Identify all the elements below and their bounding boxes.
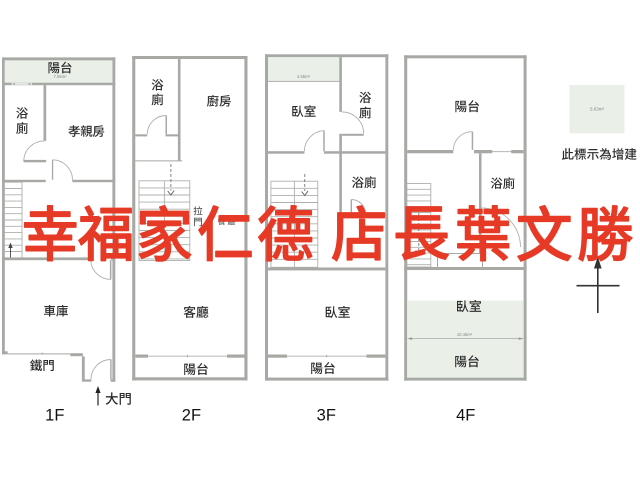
svg-text:5.63m²: 5.63m² bbox=[590, 107, 605, 112]
svg-text:4.56m²: 4.56m² bbox=[297, 74, 311, 79]
svg-text:3F: 3F bbox=[317, 406, 336, 424]
svg-text:10.46m²: 10.46m² bbox=[457, 332, 473, 337]
svg-text:1F: 1F bbox=[45, 406, 64, 424]
svg-text:2F: 2F bbox=[182, 406, 201, 424]
svg-text:7.56m²: 7.56m² bbox=[53, 74, 67, 79]
svg-text:4F: 4F bbox=[456, 406, 475, 424]
